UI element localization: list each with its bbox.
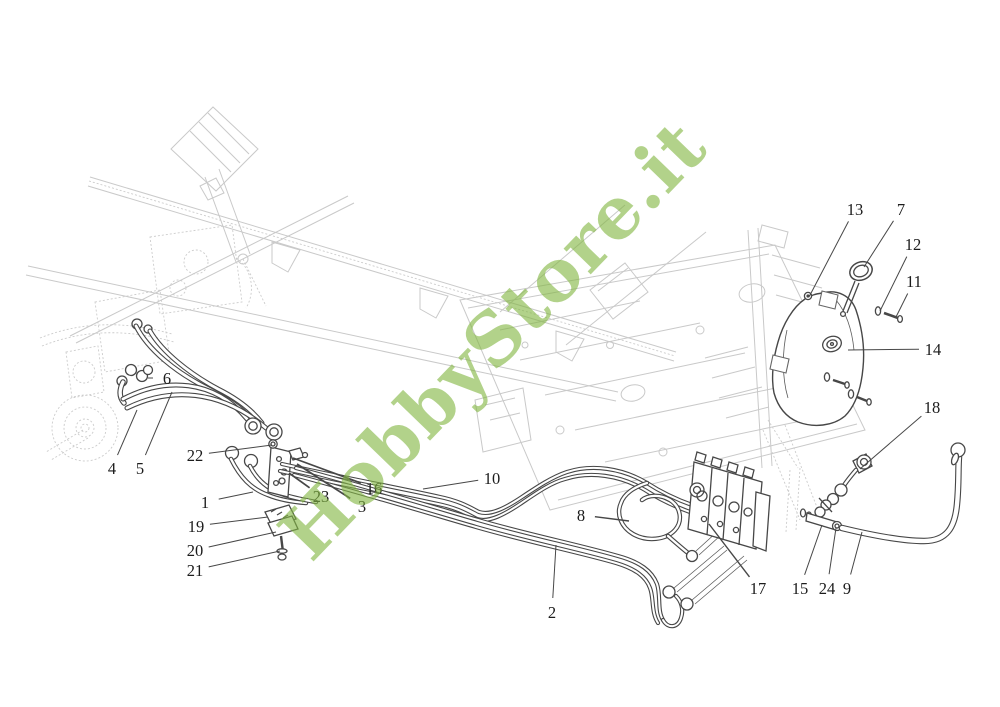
callout-15-label: 15 <box>792 579 809 598</box>
drain-line-assembly <box>801 443 966 541</box>
callout-7-label: 7 <box>897 200 905 219</box>
callout-20-leader <box>209 532 276 547</box>
delivery-pipes <box>123 385 282 440</box>
callout-12-label: 12 <box>905 235 922 254</box>
callout-13-label: 13 <box>847 200 864 219</box>
callout-24-leader <box>829 528 836 574</box>
callout-9-leader <box>851 532 862 575</box>
callout-22-label: 22 <box>187 446 204 465</box>
parts-diagram-page: 123456789101112131415161718192021222324 … <box>0 0 1000 707</box>
oil-tank <box>770 258 902 425</box>
chassis-frame-sketch <box>26 107 865 532</box>
callout-17-label: 17 <box>750 579 767 598</box>
callout-24-label: 24 <box>819 579 836 598</box>
callout-1-leader <box>219 492 253 499</box>
pipe-end-fittings <box>663 546 747 610</box>
callout-20-label: 20 <box>187 541 204 560</box>
callout-8-leader <box>595 517 629 521</box>
callout-19-leader <box>210 517 268 524</box>
callout-5-label: 5 <box>136 459 144 478</box>
valve-block <box>688 452 770 551</box>
callout-19-label: 19 <box>188 517 205 536</box>
callout-4-leader <box>118 410 138 455</box>
callout-13-leader <box>809 221 849 297</box>
watermark-text: HobbyStore.it <box>262 103 722 575</box>
callout-21-label: 21 <box>187 561 204 580</box>
callout-22-leader <box>209 445 272 453</box>
callout-8-label: 8 <box>577 506 585 525</box>
callout-9-label: 9 <box>843 579 851 598</box>
tilted-subframe-sketch <box>171 107 266 306</box>
callout-2-label: 2 <box>548 603 556 622</box>
callout-4-label: 4 <box>108 459 116 478</box>
callout-21-leader <box>209 551 280 567</box>
callout-7-leader <box>864 221 894 267</box>
callout-11-label: 11 <box>906 272 922 291</box>
callout-2-leader <box>553 545 556 598</box>
parts-diagram-canvas: 123456789101112131415161718192021222324 … <box>0 0 1000 707</box>
callout-6-label: 6 <box>163 369 171 388</box>
callout-18-leader <box>860 416 921 469</box>
callout-10-leader <box>423 480 478 489</box>
callout-10-label: 10 <box>484 469 501 488</box>
callout-15-leader <box>805 525 822 575</box>
callout-1-label: 1 <box>201 493 209 512</box>
callout-11-leader <box>896 294 908 318</box>
callout-14-label: 14 <box>925 340 942 359</box>
callout-18-label: 18 <box>924 398 941 417</box>
